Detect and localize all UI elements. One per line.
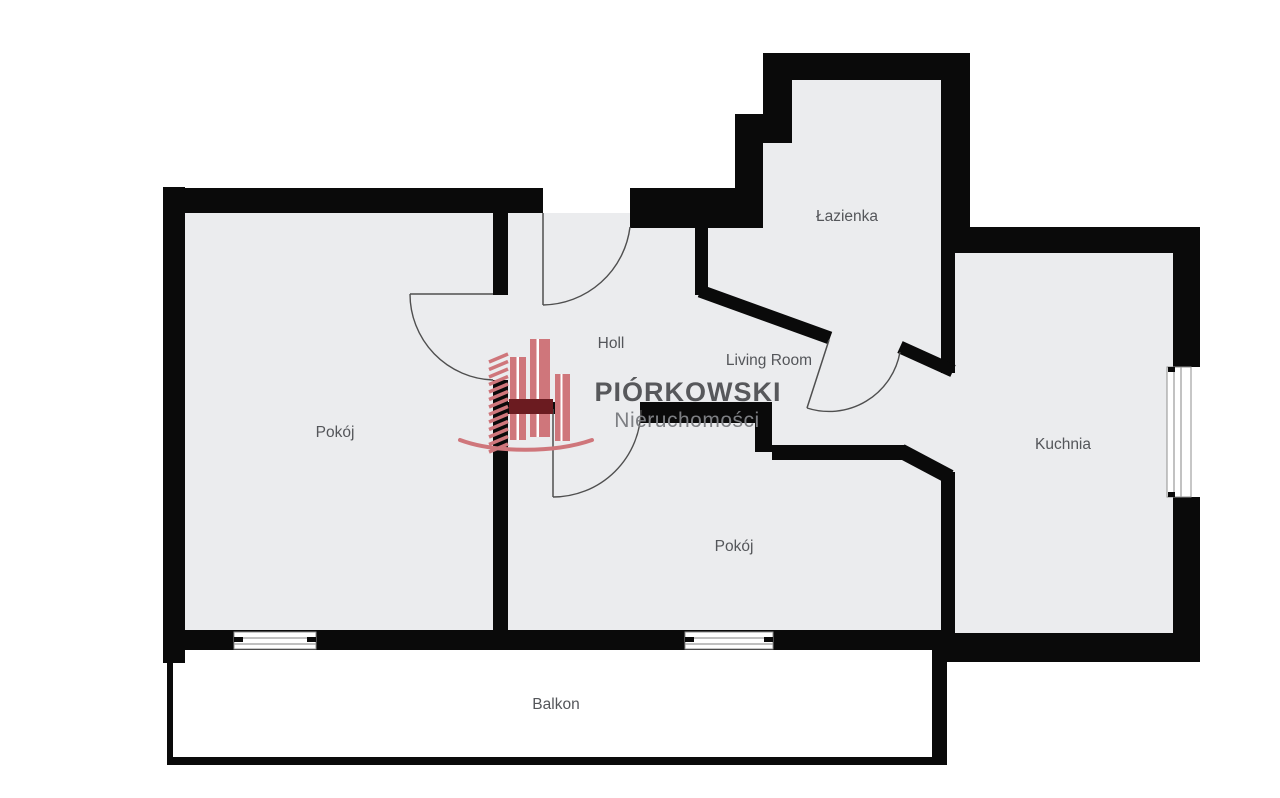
wall-top-entrance-right (630, 188, 735, 228)
wall-kitchen-top (941, 227, 1200, 253)
room-label-holl: Holl (598, 335, 625, 352)
wall-bath-step-lower (735, 114, 763, 228)
room-label-lazienka: Łazienka (816, 208, 878, 225)
wall-pokoj1-right-upper (493, 213, 508, 295)
room-pokoj-1-floor (185, 213, 508, 630)
logo-bar-2-slit (537, 339, 540, 437)
wall-balcony-right (932, 647, 947, 765)
wall-kitchen-left-upper (941, 250, 955, 373)
logo-building-bar-2 (530, 339, 550, 437)
wall-balcony-left (167, 650, 173, 760)
wall-outer-left (163, 187, 185, 663)
room-label-pokoj-1: Pokój (316, 424, 355, 441)
window-pokoj-2 (685, 632, 773, 649)
wall-bath-step-upper (763, 80, 792, 143)
window-kuchnia (1167, 367, 1191, 497)
wall-kitchen-bottom (940, 633, 1200, 662)
room-label-balkon: Balkon (532, 696, 579, 713)
wall-holl-bath-thin (695, 228, 708, 295)
logo-brand-text: PIÓRKOWSKI (594, 376, 781, 407)
wall-bath-top (763, 53, 970, 80)
wall-kitchen-right-upper (1173, 227, 1200, 367)
window-pokoj-1 (234, 632, 316, 649)
floor-plan-drawing: Pokój Holl Living Room Łazienka Kuchnia … (0, 0, 1280, 798)
logo-subtitle-text: Nieruchomości (614, 409, 759, 432)
logo-bar-1-slit (517, 357, 520, 440)
logo-dark-crossbar (509, 399, 553, 414)
wall-balcony-bottom (167, 757, 947, 765)
room-label-kuchnia: Kuchnia (1035, 436, 1091, 453)
wall-bath-right (941, 53, 970, 228)
floor-plan-page: Pokój Holl Living Room Łazienka Kuchnia … (0, 0, 1280, 798)
room-label-living-room: Living Room (726, 352, 812, 369)
logo-bar-3-slit (561, 374, 563, 441)
room-label-pokoj-2: Pokój (715, 538, 754, 555)
wall-living-pokoj2 (772, 445, 905, 460)
wall-outer-top-left (163, 188, 543, 213)
